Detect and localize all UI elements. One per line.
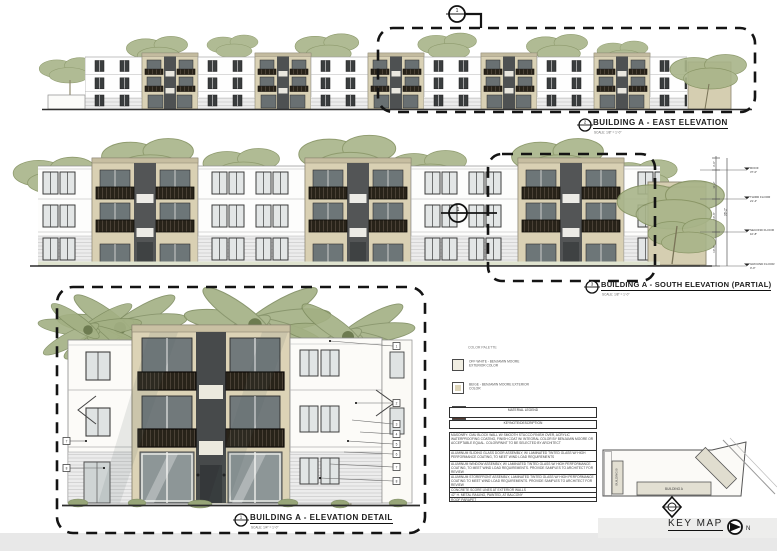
keymap-building-a-label: BUILDING A bbox=[665, 487, 684, 491]
south-title-bubble: 3 bbox=[584, 281, 600, 293]
keynote-tag: 5 bbox=[396, 443, 398, 447]
south-elevation-scale: SCALE: 1/8" = 1'-0" bbox=[602, 293, 777, 296]
detail-elevation-drawing: 1 2 3 4 5 6 7 8 7 8 1 bbox=[37, 280, 425, 533]
dim-parapet: 3'-0" bbox=[712, 161, 716, 167]
east-title-bubble: 2 bbox=[577, 119, 593, 131]
south-elevation-title: BUILDING A - SOUTH ELEVATION (PARTIAL) bbox=[601, 280, 771, 291]
color-palette-header: COLOR PALETTE bbox=[468, 346, 535, 350]
east-elevation-drawing: 1 2 bbox=[39, 6, 755, 131]
keynote-tag: 6 bbox=[396, 453, 398, 457]
material-legend-header: MATERIAL LEGEND bbox=[449, 407, 597, 418]
keymap-building-b-label: BUILDING B bbox=[615, 468, 619, 485]
level-roof-elev: 37'-0" bbox=[750, 170, 757, 174]
key-map-title: KEY MAP bbox=[668, 518, 723, 531]
south-grass-strip bbox=[38, 262, 660, 266]
east-callout-bubble: 1 bbox=[446, 6, 481, 28]
keynote-tag: 7 bbox=[396, 466, 398, 470]
keynote-tag: 4 bbox=[396, 433, 398, 437]
legend-row: MASONRY: CMU BLOCK WALL W/ SMOOTH STUCCO… bbox=[449, 432, 597, 451]
east-elevation-title: BUILDING A - EAST ELEVATION bbox=[593, 118, 728, 129]
palette-item-label: BEIGE - BENJAMIN MOORE EXTERIOR COLOR bbox=[469, 383, 536, 391]
dim-overall: 36'-2" bbox=[724, 208, 728, 216]
east-elevation-scale: SCALE: 1/8" = 1'-0" bbox=[594, 131, 777, 134]
east-site-wall bbox=[48, 95, 85, 109]
east-callout-ref: 1 bbox=[456, 8, 459, 14]
dim-third: 11'-2" bbox=[712, 181, 716, 188]
keynote-tag: 3 bbox=[396, 423, 398, 427]
swatch-off-white bbox=[452, 359, 464, 371]
south-callout-ref: 1 bbox=[457, 207, 460, 213]
palette-item: BEIGE - BENJAMIN MOORE EXTERIOR COLOR bbox=[452, 382, 602, 399]
keynote-tag: 8 bbox=[66, 467, 68, 471]
level-third-elev: 21'-4" bbox=[750, 199, 757, 203]
legend-row: ALUMINUM STOREFRONT ASSEMBLY, LAMINATED … bbox=[449, 474, 597, 488]
detail-title-bubble: 1 bbox=[233, 514, 249, 526]
detail-elevation-title: BUILDING A - ELEVATION DETAIL bbox=[250, 513, 393, 524]
south-level-labels: ROOF 37'-0" THIRD FLOOR 21'-4" SECOND FL… bbox=[750, 166, 775, 270]
keymap-elevation-marker bbox=[663, 497, 681, 517]
dim-ground: 10'-8" bbox=[712, 245, 716, 253]
south-elevation-drawing: 1 3 ROOF 37'-0" THIRD FLOO bbox=[0, 135, 775, 293]
swatch-beige bbox=[452, 382, 464, 394]
legend-row: ROOF PARAPET bbox=[449, 497, 597, 502]
dim-second: 10'-8" bbox=[712, 212, 716, 220]
drawing-canvas: 1 2 bbox=[0, 0, 777, 551]
keynote-tag: 1 bbox=[396, 345, 398, 349]
drawing-sheet: 1 2 bbox=[0, 0, 777, 551]
palette-item-label: OFF WHITE - BENJAMIN MOORE EXTERIOR COLO… bbox=[469, 360, 536, 368]
keynote-tag: 2 bbox=[396, 402, 398, 406]
palette-item: OFF WHITE - BENJAMIN MOORE EXTERIOR COLO… bbox=[452, 359, 602, 376]
legend-row: ALUMINUM WINDOW ASSEMBLY, W/ LAMINATED T… bbox=[449, 461, 597, 475]
material-legend: MATERIAL LEGEND KEYNOTE/DESCRIPTION MASO… bbox=[449, 407, 597, 502]
level-second-elev: 10'-8" bbox=[750, 232, 757, 236]
level-ground-elev: 0'-0" bbox=[750, 266, 756, 270]
material-legend-subheader: KEYNOTE/DESCRIPTION bbox=[449, 420, 597, 429]
keynote-tag: 7 bbox=[66, 440, 68, 444]
keynote-tag: 8 bbox=[396, 480, 398, 484]
